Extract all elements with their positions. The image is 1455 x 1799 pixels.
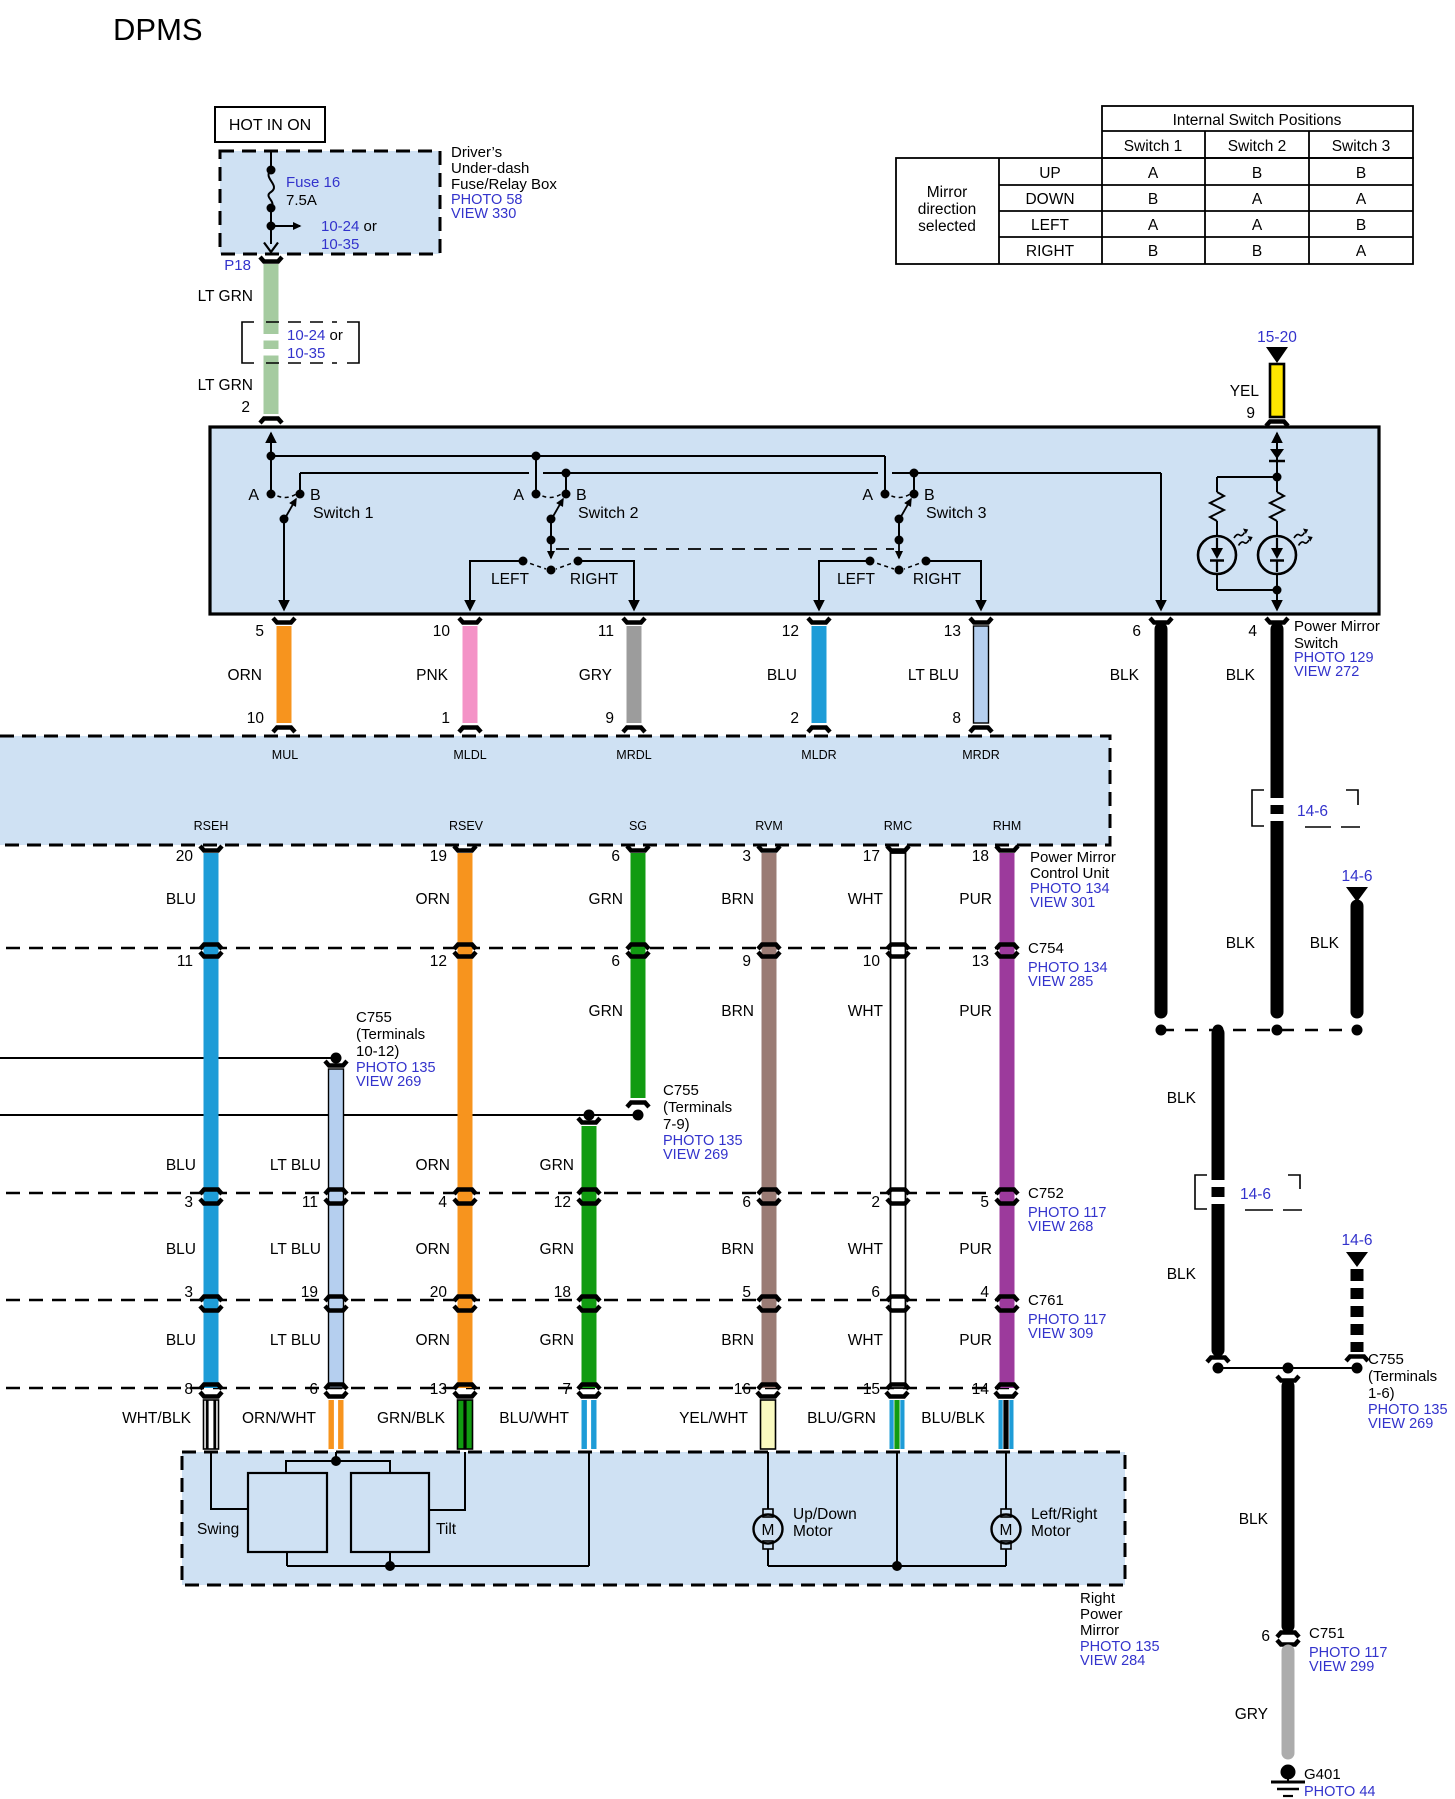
svg-text:selected: selected xyxy=(918,218,976,235)
svg-text:ORN/WHT: ORN/WHT xyxy=(242,1410,317,1427)
svg-text:BLK: BLK xyxy=(1239,1511,1269,1528)
svg-text:10-35: 10-35 xyxy=(287,345,325,362)
svg-text:GRN: GRN xyxy=(540,1241,574,1258)
svg-text:BLU: BLU xyxy=(166,1157,196,1174)
svg-text:3: 3 xyxy=(184,1194,193,1211)
svg-text:Control Unit: Control Unit xyxy=(1030,865,1110,882)
svg-text:GRY: GRY xyxy=(579,667,612,684)
svg-text:VIEW 269: VIEW 269 xyxy=(356,1074,421,1090)
svg-text:C754: C754 xyxy=(1028,940,1064,957)
svg-text:Switch 3: Switch 3 xyxy=(926,505,987,522)
svg-text:RHM: RHM xyxy=(993,819,1021,833)
svg-text:B: B xyxy=(1148,243,1158,260)
svg-text:9: 9 xyxy=(742,953,751,970)
svg-text:12: 12 xyxy=(554,1194,571,1211)
svg-text:Internal Switch Positions: Internal Switch Positions xyxy=(1173,112,1342,129)
svg-text:BLU: BLU xyxy=(166,1241,196,1258)
svg-text:C755: C755 xyxy=(1368,1351,1404,1368)
svg-text:P18: P18 xyxy=(224,257,251,274)
svg-text:UP: UP xyxy=(1039,165,1061,182)
svg-text:ORN: ORN xyxy=(416,1241,450,1258)
svg-text:7.5A: 7.5A xyxy=(286,192,317,209)
svg-text:RVM: RVM xyxy=(755,819,783,833)
svg-text:2: 2 xyxy=(241,399,250,416)
svg-text:WHT: WHT xyxy=(848,891,884,908)
svg-text:DOWN: DOWN xyxy=(1025,191,1074,208)
svg-text:SG: SG xyxy=(629,819,647,833)
svg-text:C755: C755 xyxy=(356,1009,392,1026)
svg-text:A: A xyxy=(248,487,259,504)
svg-text:8: 8 xyxy=(184,1381,193,1398)
svg-text:A: A xyxy=(862,487,873,504)
svg-text:PUR: PUR xyxy=(959,1003,992,1020)
svg-text:14: 14 xyxy=(972,1381,990,1398)
svg-text:LT BLU: LT BLU xyxy=(270,1332,321,1349)
svg-text:BLU/BLK: BLU/BLK xyxy=(921,1410,985,1427)
svg-text:14-6: 14-6 xyxy=(1341,868,1372,885)
svg-text:VIEW 330: VIEW 330 xyxy=(451,206,516,222)
svg-text:20: 20 xyxy=(430,1284,448,1301)
svg-text:(Terminals: (Terminals xyxy=(663,1099,732,1116)
svg-text:Switch 1: Switch 1 xyxy=(313,505,374,522)
svg-text:5: 5 xyxy=(980,1194,989,1211)
svg-text:VIEW 272: VIEW 272 xyxy=(1294,664,1359,680)
svg-text:LT BLU: LT BLU xyxy=(270,1157,321,1174)
svg-text:Switch 1: Switch 1 xyxy=(1124,138,1183,155)
svg-text:A: A xyxy=(1148,165,1159,182)
svg-text:Power: Power xyxy=(1080,1606,1123,1623)
svg-text:B: B xyxy=(924,487,935,504)
svg-text:RIGHT: RIGHT xyxy=(570,571,619,588)
svg-text:Motor: Motor xyxy=(1031,1523,1071,1540)
svg-text:15-20: 15-20 xyxy=(1257,329,1297,346)
svg-text:2: 2 xyxy=(871,1194,880,1211)
svg-text:MUL: MUL xyxy=(272,748,298,762)
svg-text:M: M xyxy=(1000,1522,1013,1539)
svg-text:YEL/WHT: YEL/WHT xyxy=(679,1410,748,1427)
svg-text:6: 6 xyxy=(1261,1628,1270,1645)
svg-text:BLK: BLK xyxy=(1226,667,1256,684)
svg-text:VIEW 301: VIEW 301 xyxy=(1030,895,1095,911)
svg-text:YEL: YEL xyxy=(1230,383,1260,400)
svg-text:9: 9 xyxy=(605,710,614,727)
svg-text:Power Mirror: Power Mirror xyxy=(1030,849,1116,866)
svg-text:BRN: BRN xyxy=(721,1003,754,1020)
svg-text:7-9): 7-9) xyxy=(663,1116,690,1133)
svg-text:direction: direction xyxy=(918,201,977,218)
svg-text:BLK: BLK xyxy=(1310,935,1340,952)
svg-text:Mirror: Mirror xyxy=(1080,1622,1119,1639)
svg-text:11: 11 xyxy=(177,953,193,970)
svg-text:15: 15 xyxy=(863,1381,880,1398)
svg-text:B: B xyxy=(1356,217,1366,234)
svg-text:MRDL: MRDL xyxy=(616,748,651,762)
svg-text:10: 10 xyxy=(247,710,265,727)
svg-text:Swing: Swing xyxy=(197,1521,239,1538)
svg-text:LT GRN: LT GRN xyxy=(198,288,253,305)
svg-text:10-24 or: 10-24 or xyxy=(321,218,377,235)
svg-text:LEFT: LEFT xyxy=(491,571,529,588)
svg-text:16: 16 xyxy=(734,1381,751,1398)
svg-text:VIEW 269: VIEW 269 xyxy=(663,1147,728,1163)
svg-text:ORN: ORN xyxy=(228,667,262,684)
svg-text:10-35: 10-35 xyxy=(321,236,359,253)
svg-text:12: 12 xyxy=(782,623,799,640)
svg-text:M: M xyxy=(762,1522,775,1539)
svg-text:7: 7 xyxy=(562,1381,571,1398)
svg-text:BLK: BLK xyxy=(1226,935,1256,952)
svg-text:Switch 3: Switch 3 xyxy=(1332,138,1391,155)
svg-text:Power Mirror: Power Mirror xyxy=(1294,618,1380,635)
svg-text:4: 4 xyxy=(1248,623,1257,640)
svg-text:Switch 2: Switch 2 xyxy=(1228,138,1287,155)
svg-text:3: 3 xyxy=(742,848,751,865)
svg-text:BRN: BRN xyxy=(721,1332,754,1349)
svg-text:Switch 2: Switch 2 xyxy=(578,505,639,522)
svg-text:B: B xyxy=(310,487,321,504)
svg-text:Right: Right xyxy=(1080,1590,1116,1607)
svg-text:A: A xyxy=(1356,243,1367,260)
svg-text:6: 6 xyxy=(1132,623,1141,640)
svg-text:B: B xyxy=(1148,191,1158,208)
svg-text:A: A xyxy=(1252,217,1263,234)
svg-text:LEFT: LEFT xyxy=(837,571,875,588)
svg-text:GRN/BLK: GRN/BLK xyxy=(377,1410,446,1427)
svg-text:19: 19 xyxy=(301,1284,318,1301)
svg-text:RSEH: RSEH xyxy=(194,819,229,833)
svg-text:3: 3 xyxy=(184,1284,193,1301)
svg-text:GRN: GRN xyxy=(589,891,623,908)
svg-text:17: 17 xyxy=(863,848,880,865)
svg-text:BRN: BRN xyxy=(721,891,754,908)
svg-text:10-12): 10-12) xyxy=(356,1043,399,1060)
svg-text:PNK: PNK xyxy=(416,667,449,684)
svg-text:Motor: Motor xyxy=(793,1523,833,1540)
svg-text:8: 8 xyxy=(952,710,961,727)
svg-text:PUR: PUR xyxy=(959,1332,992,1349)
svg-text:5: 5 xyxy=(742,1284,751,1301)
svg-text:MRDR: MRDR xyxy=(962,748,1000,762)
svg-text:C755: C755 xyxy=(663,1082,699,1099)
svg-text:BLK: BLK xyxy=(1167,1266,1197,1283)
svg-text:BLU: BLU xyxy=(166,891,196,908)
svg-text:VIEW 299: VIEW 299 xyxy=(1309,1659,1374,1675)
svg-text:HOT IN ON: HOT IN ON xyxy=(229,117,311,134)
svg-text:13: 13 xyxy=(430,1381,447,1398)
svg-text:LEFT: LEFT xyxy=(1031,217,1069,234)
svg-text:18: 18 xyxy=(554,1284,571,1301)
svg-text:18: 18 xyxy=(972,848,989,865)
svg-text:6: 6 xyxy=(611,953,620,970)
svg-text:BLU/GRN: BLU/GRN xyxy=(807,1410,876,1427)
svg-text:A: A xyxy=(1356,191,1367,208)
svg-text:ORN: ORN xyxy=(416,1332,450,1349)
svg-text:PHOTO 44: PHOTO 44 xyxy=(1304,1784,1375,1799)
svg-text:PUR: PUR xyxy=(959,891,992,908)
svg-text:A: A xyxy=(1148,217,1159,234)
svg-text:WHT: WHT xyxy=(848,1332,884,1349)
svg-text:BLU: BLU xyxy=(767,667,797,684)
svg-text:BRN: BRN xyxy=(721,1241,754,1258)
svg-text:B: B xyxy=(1356,165,1366,182)
svg-text:19: 19 xyxy=(430,848,447,865)
svg-text:GRN: GRN xyxy=(589,1003,623,1020)
svg-text:B: B xyxy=(1252,165,1262,182)
svg-text:WHT: WHT xyxy=(848,1003,884,1020)
svg-text:G401: G401 xyxy=(1304,1766,1341,1783)
svg-text:GRY: GRY xyxy=(1235,1706,1268,1723)
svg-text:VIEW 268: VIEW 268 xyxy=(1028,1219,1093,1235)
svg-text:6: 6 xyxy=(309,1381,318,1398)
svg-text:MLDL: MLDL xyxy=(453,748,486,762)
svg-text:RSEV: RSEV xyxy=(449,819,484,833)
svg-text:C751: C751 xyxy=(1309,1625,1345,1642)
svg-text:BLU: BLU xyxy=(166,1332,196,1349)
svg-text:20: 20 xyxy=(176,848,194,865)
svg-text:ORN: ORN xyxy=(416,1157,450,1174)
svg-text:ORN: ORN xyxy=(416,891,450,908)
svg-text:Under-dash: Under-dash xyxy=(451,160,529,177)
svg-text:A: A xyxy=(513,487,524,504)
svg-text:Fuse/Relay Box: Fuse/Relay Box xyxy=(451,176,557,193)
svg-text:GRN: GRN xyxy=(540,1157,574,1174)
svg-text:A: A xyxy=(1252,191,1263,208)
svg-text:B: B xyxy=(1252,243,1262,260)
svg-text:B: B xyxy=(576,487,587,504)
svg-text:WHT: WHT xyxy=(848,1241,884,1258)
svg-text:Fuse 16: Fuse 16 xyxy=(286,174,340,191)
svg-text:BLK: BLK xyxy=(1167,1090,1197,1107)
svg-text:14-6: 14-6 xyxy=(1341,1232,1372,1249)
svg-text:1: 1 xyxy=(441,710,450,727)
svg-text:2: 2 xyxy=(790,710,799,727)
svg-text:10-24 or: 10-24 or xyxy=(287,327,343,344)
svg-text:Up/Down: Up/Down xyxy=(793,1506,857,1523)
svg-text:9: 9 xyxy=(1246,405,1255,422)
svg-text:6: 6 xyxy=(871,1284,880,1301)
svg-text:Left/Right: Left/Right xyxy=(1031,1506,1098,1523)
svg-text:PUR: PUR xyxy=(959,1241,992,1258)
svg-text:Mirror: Mirror xyxy=(927,184,967,201)
svg-text:(Terminals: (Terminals xyxy=(1368,1368,1437,1385)
svg-text:RIGHT: RIGHT xyxy=(1026,243,1075,260)
svg-text:(Terminals: (Terminals xyxy=(356,1026,425,1043)
svg-text:VIEW 269: VIEW 269 xyxy=(1368,1416,1433,1432)
svg-text:GRN: GRN xyxy=(540,1332,574,1349)
svg-text:4: 4 xyxy=(980,1284,989,1301)
svg-text:1-6): 1-6) xyxy=(1368,1385,1395,1402)
svg-text:10: 10 xyxy=(863,953,881,970)
svg-text:BLK: BLK xyxy=(1110,667,1140,684)
svg-text:LT GRN: LT GRN xyxy=(198,377,253,394)
svg-text:6: 6 xyxy=(611,848,620,865)
svg-text:4: 4 xyxy=(438,1194,447,1211)
svg-text:LT BLU: LT BLU xyxy=(270,1241,321,1258)
svg-text:Driver’s: Driver’s xyxy=(451,144,502,161)
svg-text:WHT/BLK: WHT/BLK xyxy=(122,1410,192,1427)
svg-text:14-6: 14-6 xyxy=(1297,803,1328,820)
svg-text:VIEW 309: VIEW 309 xyxy=(1028,1326,1093,1342)
svg-text:C752: C752 xyxy=(1028,1185,1064,1202)
svg-text:VIEW 285: VIEW 285 xyxy=(1028,974,1093,990)
svg-text:VIEW 284: VIEW 284 xyxy=(1080,1653,1145,1669)
svg-text:C761: C761 xyxy=(1028,1292,1064,1309)
svg-text:10: 10 xyxy=(433,623,451,640)
svg-text:13: 13 xyxy=(944,623,961,640)
svg-text:11: 11 xyxy=(598,623,614,640)
svg-text:Tilt: Tilt xyxy=(436,1521,457,1538)
svg-text:11: 11 xyxy=(302,1194,318,1211)
svg-text:5: 5 xyxy=(255,623,264,640)
svg-text:13: 13 xyxy=(972,953,989,970)
svg-text:LT BLU: LT BLU xyxy=(908,667,959,684)
svg-text:6: 6 xyxy=(742,1194,751,1211)
svg-text:14-6: 14-6 xyxy=(1240,1186,1271,1203)
svg-text:RMC: RMC xyxy=(884,819,912,833)
svg-text:12: 12 xyxy=(430,953,447,970)
svg-text:BLU/WHT: BLU/WHT xyxy=(499,1410,569,1427)
svg-text:RIGHT: RIGHT xyxy=(913,571,962,588)
svg-text:DPMS: DPMS xyxy=(113,12,203,47)
svg-text:MLDR: MLDR xyxy=(801,748,836,762)
